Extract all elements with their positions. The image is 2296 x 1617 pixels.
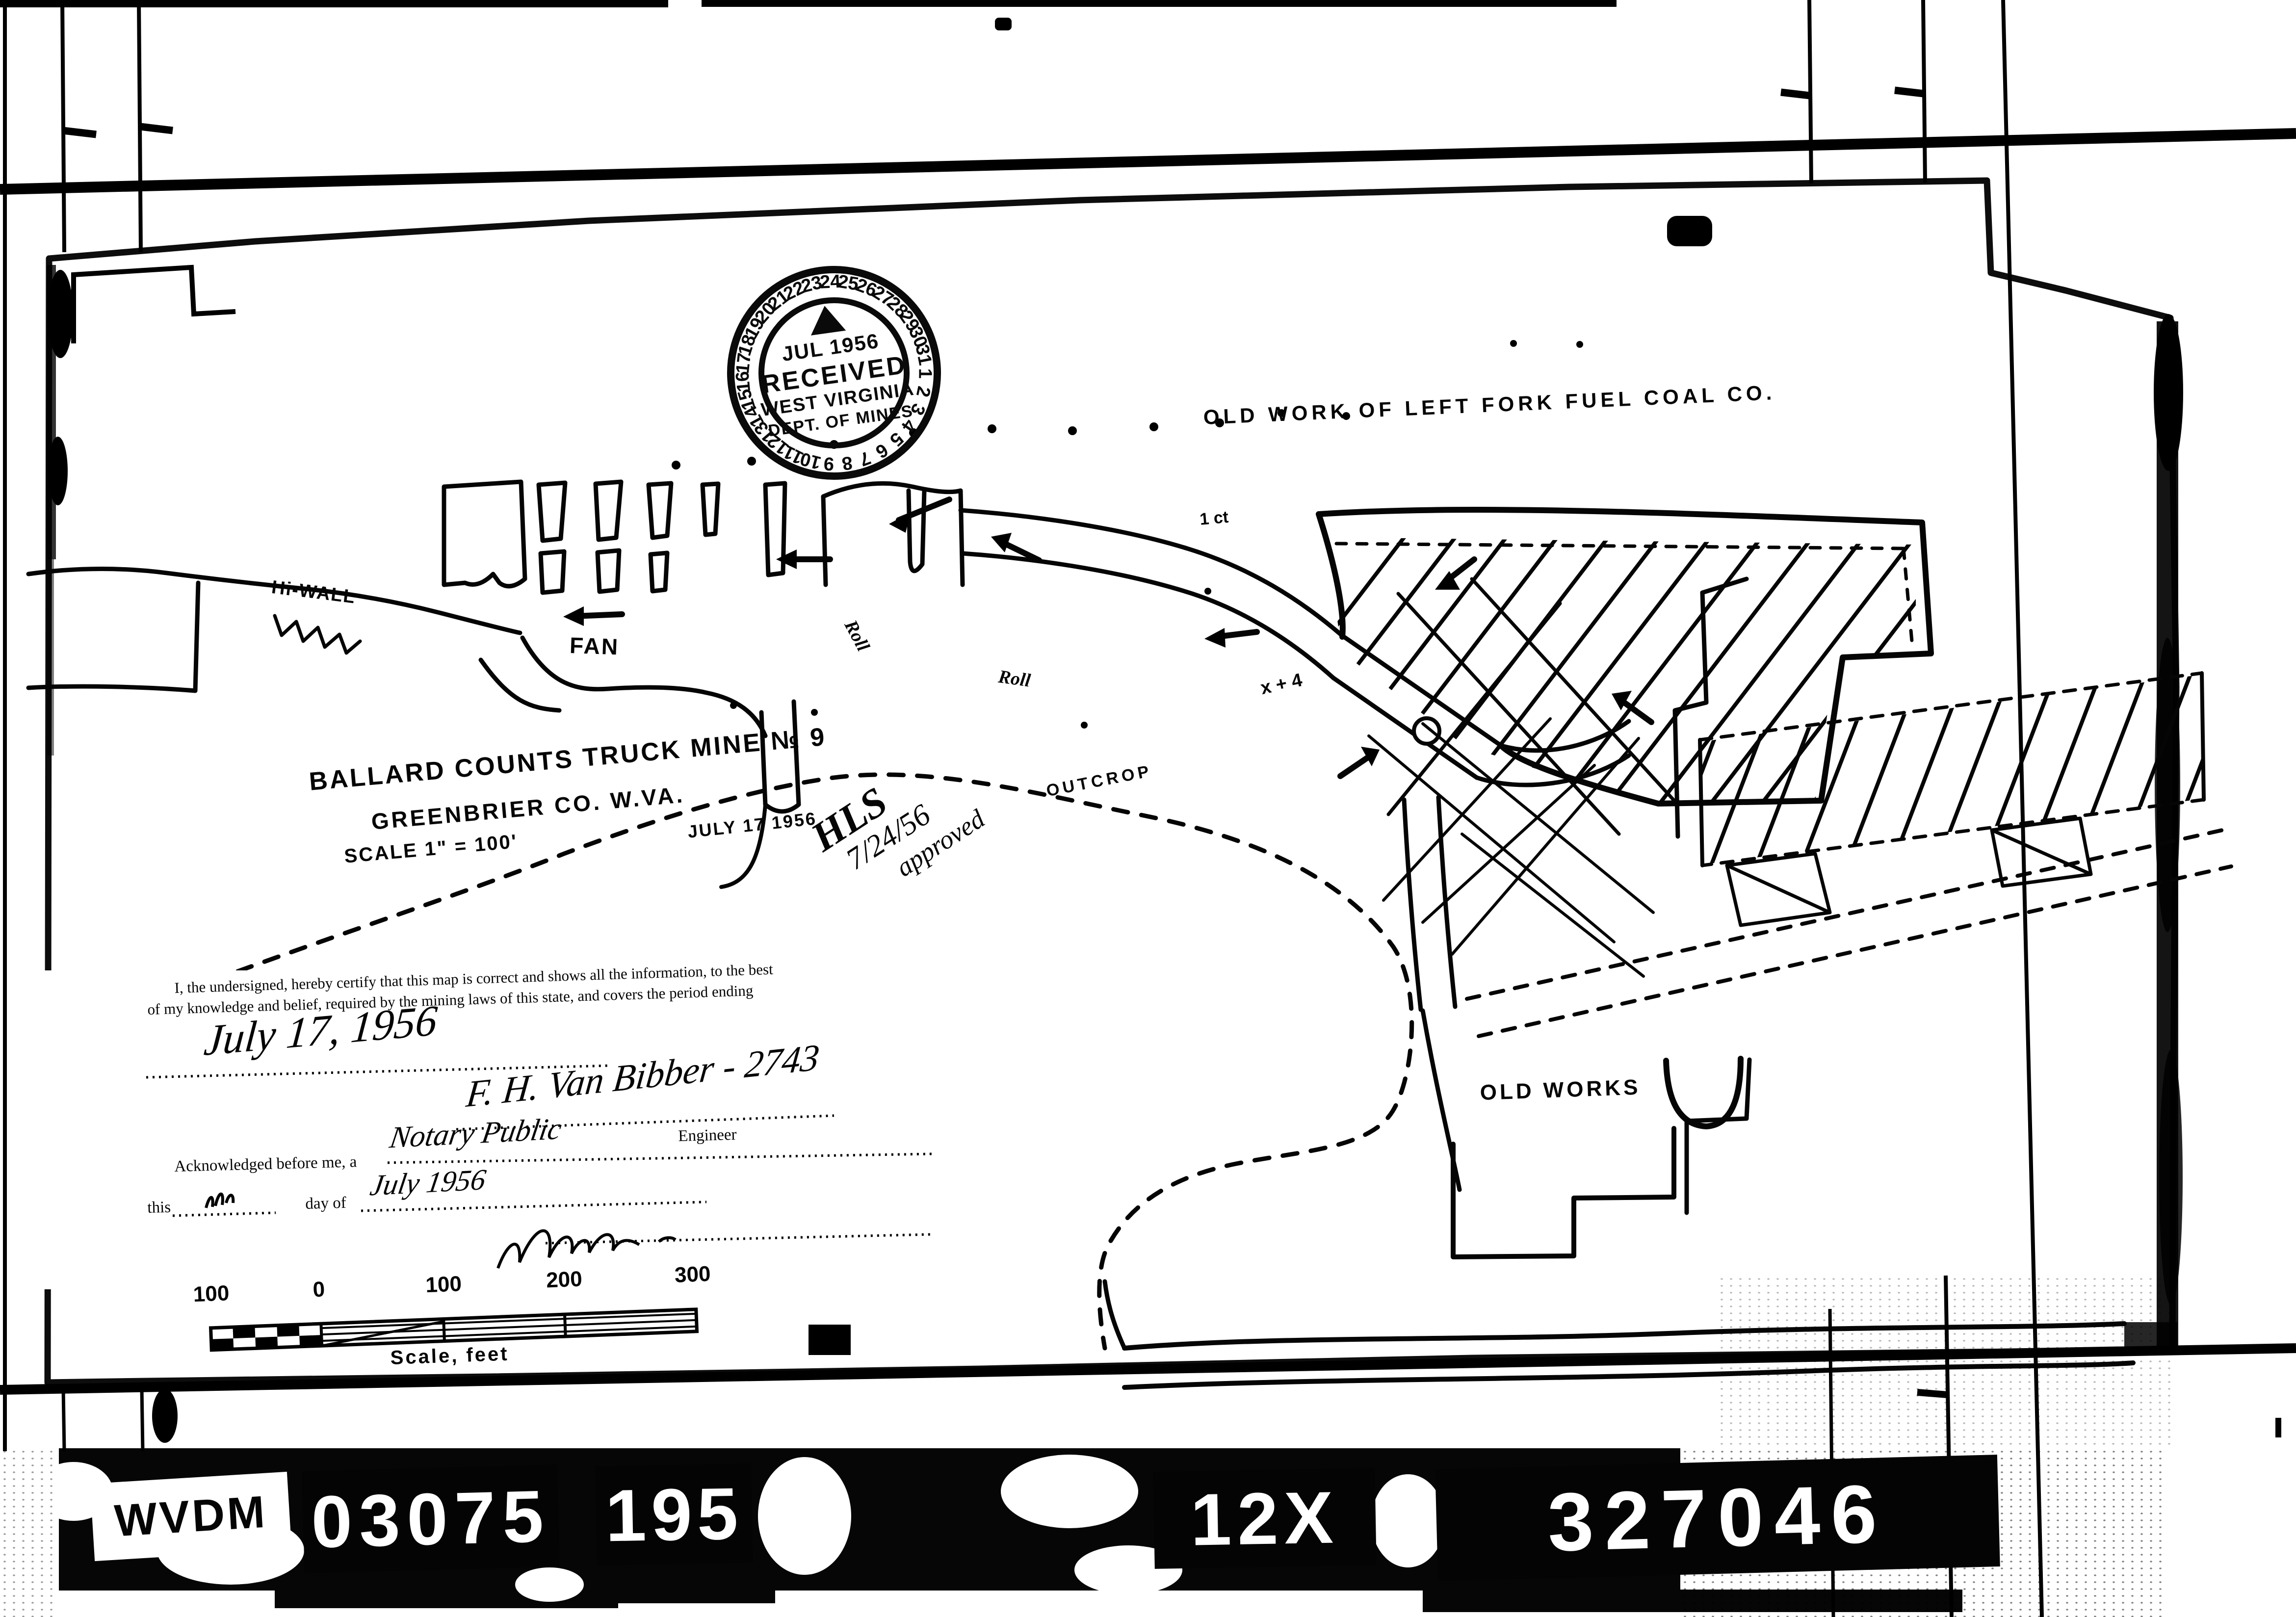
film-archive-label: WVDM (90, 1472, 292, 1561)
day-of-label: day of (305, 1195, 346, 1212)
stamp-logo-icon (807, 303, 846, 335)
film-reel-number: 03075 (302, 1464, 559, 1573)
roll-label-lower: Roll (997, 667, 1032, 690)
film-document-number: 327046 (1435, 1455, 2000, 1581)
film-noise-texture (0, 1448, 59, 1617)
scale-tick-label: 100 (193, 1282, 230, 1305)
film-noise-texture (1717, 1276, 2173, 1447)
this-label: this (147, 1200, 171, 1216)
entry-mark-label: 1 ct (1199, 509, 1229, 528)
film-reduction-factor: 12X (1153, 1468, 1376, 1569)
fan-label: FAN (569, 634, 620, 658)
engineer-label: Engineer (678, 1127, 737, 1145)
stamp-ring-number: 9 (823, 453, 835, 474)
received-stamp: 2122232425262728293031123456789101112131… (713, 252, 955, 494)
scale-tick-label: 200 (546, 1268, 582, 1291)
scale-caption: Scale, feet (390, 1344, 509, 1368)
old-works-label: OLD WORKS (1480, 1077, 1641, 1104)
scale-tick-label: 100 (425, 1273, 462, 1296)
microfilm-scan: 2122232425262728293031123456789101112131… (0, 0, 2296, 1617)
scale-tick-label: 0 (313, 1279, 325, 1301)
month-handwriting: July 1956 (368, 1165, 488, 1200)
scale-tick-label: 300 (674, 1263, 711, 1286)
film-frame-number: 195 (595, 1463, 753, 1565)
